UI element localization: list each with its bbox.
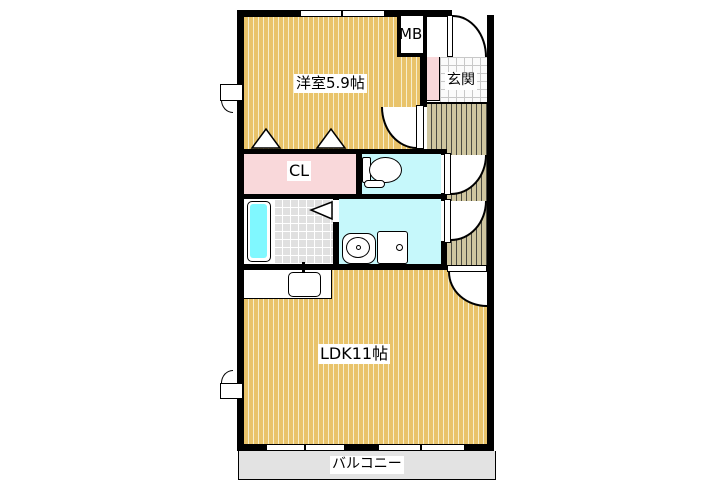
balcony-label: バルコニー [330,456,404,474]
closet-folding-door-icon [317,129,345,148]
entrance-label: 玄関 [445,72,477,90]
western-room-label: 洋室5.9帖 [294,74,367,93]
bathroom-door-icon [311,202,332,219]
meter-box-label: MB [399,25,422,44]
closet-folding-door-icon [252,129,280,148]
floor-plan: 洋室5.9帖 MB 玄関 CL LDK11帖 バルコニー [0,0,710,490]
closet-label: CL [287,161,311,181]
ldk-label: LDK11帖 [318,344,390,364]
